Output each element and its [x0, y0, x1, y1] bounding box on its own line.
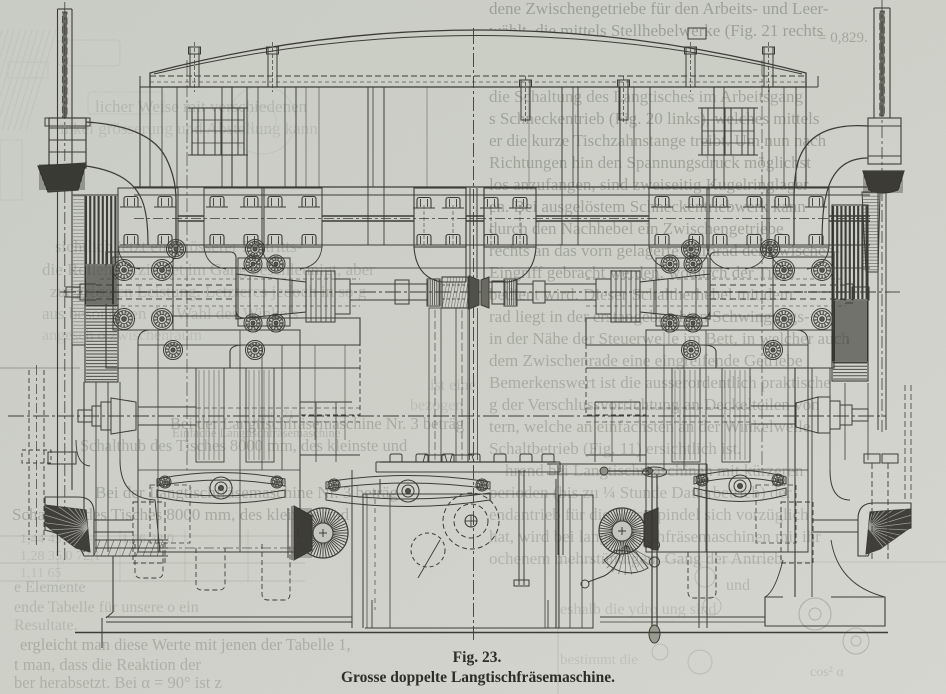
svg-text:Fig. 23.: Fig. 23.: [453, 649, 502, 666]
svg-text:Grosse doppelte Langtischfrä: Grosse doppelte Langtischfräsemaschine.: [341, 669, 615, 686]
